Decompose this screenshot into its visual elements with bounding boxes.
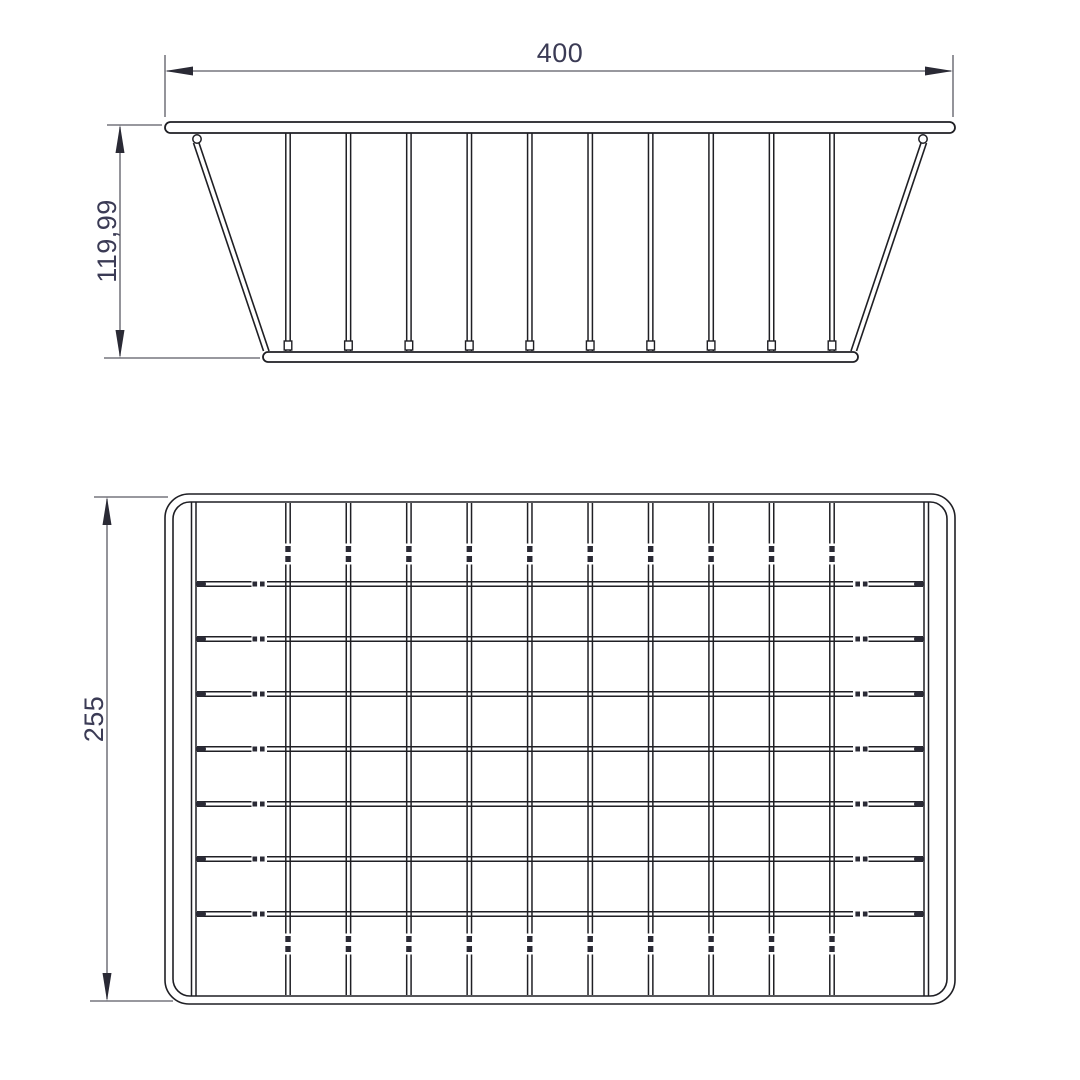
- front-width-dimension: 400: [165, 38, 953, 117]
- wire-joint-bead: [406, 546, 411, 552]
- wire-joint-bead: [467, 546, 472, 552]
- plan-inner-rim: [173, 502, 947, 996]
- wire-end-cap: [196, 801, 206, 806]
- wire-end-cap: [196, 581, 206, 586]
- wire-bend-bead: [253, 857, 258, 862]
- wire-bend-bead: [260, 912, 265, 917]
- front-vertical-wires: [284, 133, 836, 351]
- wire-bend-bead: [855, 912, 860, 917]
- wire-joint-bead: [588, 936, 593, 942]
- wire-joint-bead: [346, 546, 351, 552]
- wire-bend-bead: [863, 692, 868, 697]
- front-elevation-view: 400 119,99: [92, 38, 955, 362]
- arrowhead-bottom: [103, 973, 112, 1001]
- wire-joint-bead: [527, 946, 532, 952]
- wire-end-cap: [914, 801, 924, 806]
- wire-joint-bead: [769, 936, 774, 942]
- wire-joint-bead: [708, 546, 713, 552]
- front-right-slant-wire: [851, 143, 927, 351]
- wire-bend-bead: [260, 747, 265, 752]
- plan-right-wall-edge: [924, 502, 929, 996]
- arrowhead-bottom: [116, 330, 125, 358]
- wire-bend-bead: [863, 582, 868, 587]
- wire-bend-bead: [253, 692, 258, 697]
- wire-bend-bead: [863, 857, 868, 862]
- front-height-value: 119,99: [92, 199, 122, 283]
- wire-end-cap: [914, 911, 924, 916]
- wire-joint-bead: [527, 936, 532, 942]
- plan-horizontal-wires: [196, 580, 924, 918]
- wire-joint-bead: [708, 946, 713, 952]
- wire-bend-bead: [253, 747, 258, 752]
- front-width-value: 400: [537, 38, 584, 68]
- front-wire-joint: [405, 341, 413, 350]
- front-bottom-rim: [263, 352, 858, 362]
- wire-joint-bead: [285, 946, 290, 952]
- wire-bend-bead: [855, 802, 860, 807]
- wire-end-cap: [196, 911, 206, 916]
- wire-bend-bead: [855, 857, 860, 862]
- wire-joint-bead: [285, 556, 290, 562]
- wire-joint-bead: [829, 546, 834, 552]
- plan-left-wall-edge: [192, 502, 197, 996]
- wire-bend-bead: [855, 692, 860, 697]
- wire-joint-bead: [467, 946, 472, 952]
- plan-outer-rim: [165, 494, 955, 1004]
- wire-end-cap: [196, 856, 206, 861]
- front-wire-joint: [828, 341, 836, 350]
- front-wire-joint: [526, 341, 534, 350]
- wire-bend-bead: [863, 802, 868, 807]
- arrowhead-top: [103, 497, 112, 525]
- wire-joint-bead: [285, 936, 290, 942]
- wire-joint-bead: [467, 936, 472, 942]
- rim-hook-right: [919, 135, 927, 143]
- wire-joint-bead: [648, 546, 653, 552]
- front-left-slant-wire: [194, 143, 270, 351]
- wire-joint-bead: [588, 546, 593, 552]
- wire-end-cap: [914, 746, 924, 751]
- wire-joint-bead: [648, 936, 653, 942]
- wire-end-cap: [196, 691, 206, 696]
- rim-hook-left: [193, 135, 201, 143]
- wire-bend-bead: [260, 637, 265, 642]
- front-wire-joint: [707, 341, 715, 350]
- front-wire-joint: [768, 341, 776, 350]
- wire-bend-bead: [260, 692, 265, 697]
- wire-joint-bead: [708, 936, 713, 942]
- wire-end-cap: [196, 636, 206, 641]
- front-wire-joint: [586, 341, 594, 350]
- wire-end-cap: [914, 636, 924, 641]
- wire-end-cap: [914, 856, 924, 861]
- front-height-dimension: 119,99: [92, 125, 260, 358]
- wire-bend-bead: [863, 637, 868, 642]
- wire-bend-bead: [855, 747, 860, 752]
- wire-bend-bead: [253, 582, 258, 587]
- front-wire-joint: [466, 341, 474, 350]
- wire-joint-bead: [769, 556, 774, 562]
- wire-bend-bead: [855, 582, 860, 587]
- wire-bend-bead: [863, 912, 868, 917]
- wire-joint-bead: [346, 946, 351, 952]
- wire-joint-bead: [406, 946, 411, 952]
- wire-bend-bead: [260, 802, 265, 807]
- wire-joint-bead: [467, 556, 472, 562]
- wire-bend-bead: [260, 582, 265, 587]
- wire-joint-bead: [346, 936, 351, 942]
- wire-joint-bead: [406, 936, 411, 942]
- wire-bend-bead: [253, 637, 258, 642]
- wire-joint-bead: [829, 946, 834, 952]
- wire-joint-bead: [708, 556, 713, 562]
- arrowhead-left: [165, 67, 193, 76]
- wire-joint-bead: [285, 546, 290, 552]
- front-wire-joint: [647, 341, 655, 350]
- wire-joint-bead: [829, 556, 834, 562]
- wire-end-cap: [914, 581, 924, 586]
- wire-joint-bead: [648, 556, 653, 562]
- arrowhead-right: [925, 67, 953, 76]
- plan-depth-value: 255: [79, 696, 109, 743]
- wire-joint-bead: [406, 556, 411, 562]
- wire-joint-bead: [829, 936, 834, 942]
- wire-bend-bead: [253, 912, 258, 917]
- plan-vertical-wires: [284, 503, 836, 995]
- plan-view: 255: [79, 494, 955, 1004]
- technical-drawing-page: 400 119,99: [0, 0, 1080, 1080]
- wire-bend-bead: [863, 747, 868, 752]
- wire-joint-bead: [527, 546, 532, 552]
- wire-joint-bead: [346, 556, 351, 562]
- wire-joint-bead: [588, 556, 593, 562]
- wire-end-cap: [196, 746, 206, 751]
- arrowhead-top: [116, 125, 125, 153]
- basket-drawing-svg: 400 119,99: [0, 0, 1080, 1080]
- wire-joint-bead: [769, 546, 774, 552]
- wire-bend-bead: [260, 857, 265, 862]
- front-top-rim: [165, 122, 955, 133]
- wire-joint-bead: [769, 946, 774, 952]
- plan-depth-dimension: 255: [79, 497, 173, 1001]
- wire-joint-bead: [527, 556, 532, 562]
- front-wire-joint: [284, 341, 292, 350]
- wire-end-cap: [914, 691, 924, 696]
- wire-bend-bead: [253, 802, 258, 807]
- wire-bend-bead: [855, 637, 860, 642]
- wire-joint-bead: [588, 946, 593, 952]
- front-wire-joint: [345, 341, 353, 350]
- wire-joint-bead: [648, 946, 653, 952]
